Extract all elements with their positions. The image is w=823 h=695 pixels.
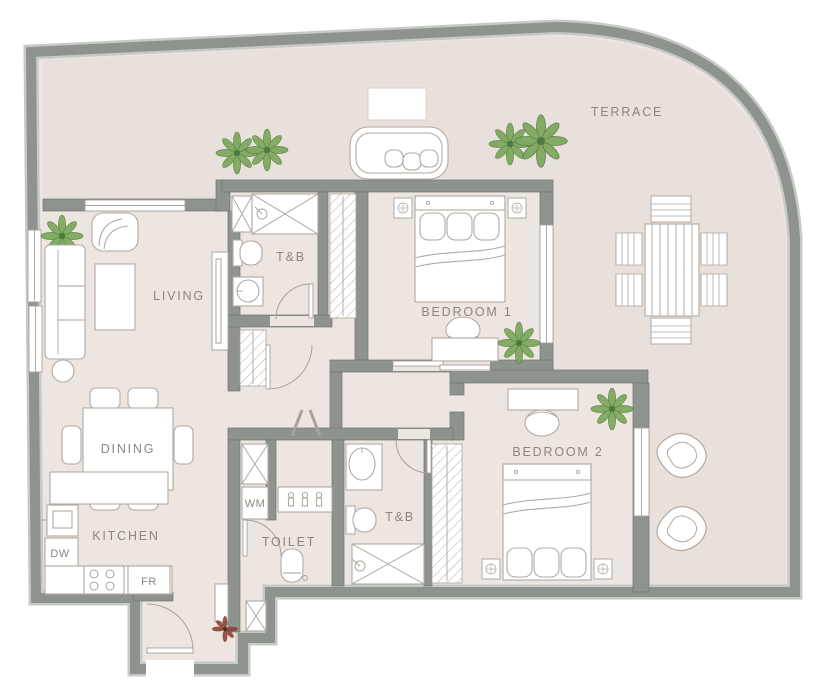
- room-label-bedroom1: BEDROOM 1: [421, 305, 512, 319]
- bed-icon: [503, 464, 591, 580]
- appliance-label-wm: WM: [245, 498, 266, 510]
- nightstand-icon: [594, 559, 612, 579]
- floor-plan-page: TERRACE LIVING DINING KITCHEN TOILET T&B…: [0, 0, 823, 695]
- nightstand-icon: [508, 198, 526, 218]
- room-label-dining: DINING: [101, 442, 156, 456]
- nightstand-icon: [482, 559, 500, 579]
- window-living-top: [85, 200, 185, 211]
- closet-bedroom2: [432, 444, 462, 583]
- outdoor-sofa-icon: [350, 127, 448, 179]
- dining-chair: [174, 426, 193, 464]
- dining-chair: [128, 388, 158, 409]
- window-left-1: [28, 230, 41, 302]
- shower-icon: [252, 194, 318, 234]
- appliance-label-dw: DW: [50, 548, 69, 560]
- window-bedroom1: [540, 225, 553, 343]
- terrace-chair: [616, 274, 642, 306]
- closet-hall: [240, 330, 266, 386]
- coffee-table-icon: [95, 264, 135, 330]
- room-label-bedroom2: BEDROOM 2: [512, 445, 603, 459]
- terrace-chair: [701, 233, 727, 265]
- shower-icon: [352, 544, 424, 584]
- terrace-chair: [616, 233, 642, 265]
- sink-icon: [233, 277, 263, 306]
- shaft-tb1: [232, 196, 252, 232]
- console-table-icon: [215, 584, 228, 622]
- kitchen-sink-icon: [41, 505, 78, 536]
- tb1-door-gap: [270, 316, 314, 326]
- shaft-wm: [242, 444, 268, 484]
- window-bedroom2: [634, 428, 649, 516]
- terrace-table-icon: [645, 224, 699, 316]
- vanity-counter: [278, 487, 332, 512]
- armchair-icon: [92, 213, 138, 251]
- tb2-door-gap: [398, 429, 430, 439]
- tv-console-icon: [212, 252, 228, 350]
- dining-chair: [90, 388, 120, 409]
- toilet-icon: [233, 240, 262, 266]
- nightstand-icon: [394, 198, 412, 218]
- dining-chair: [62, 426, 81, 464]
- stove-icon: [84, 566, 124, 594]
- terrace-chair: [701, 274, 727, 306]
- terrace-mat: [368, 88, 426, 120]
- sink-icon: [346, 444, 382, 490]
- bed-icon: [415, 196, 505, 302]
- room-label-living: LIVING: [153, 289, 205, 303]
- terrace-chair: [651, 196, 691, 222]
- kitchen-island-counter: [50, 472, 168, 504]
- floor-plan-svg: TERRACE LIVING DINING KITCHEN TOILET T&B…: [0, 0, 823, 695]
- room-label-tb1: T&B: [276, 250, 306, 264]
- room-label-toilet: TOILET: [262, 535, 316, 549]
- closet-bedroom1: [330, 194, 356, 318]
- entry-door-gap: [146, 660, 194, 677]
- room-label-kitchen: KITCHEN: [92, 529, 159, 543]
- room-label-terrace: TERRACE: [591, 105, 663, 119]
- sofa-icon: [45, 245, 85, 359]
- side-table-icon: [52, 360, 74, 382]
- shaft-entry: [246, 601, 266, 631]
- terrace-chair: [651, 318, 691, 344]
- room-label-tb2: T&B: [385, 510, 415, 524]
- toilet-icon: [346, 506, 376, 534]
- window-left-2: [29, 306, 42, 372]
- appliance-label-fr: FR: [141, 576, 157, 588]
